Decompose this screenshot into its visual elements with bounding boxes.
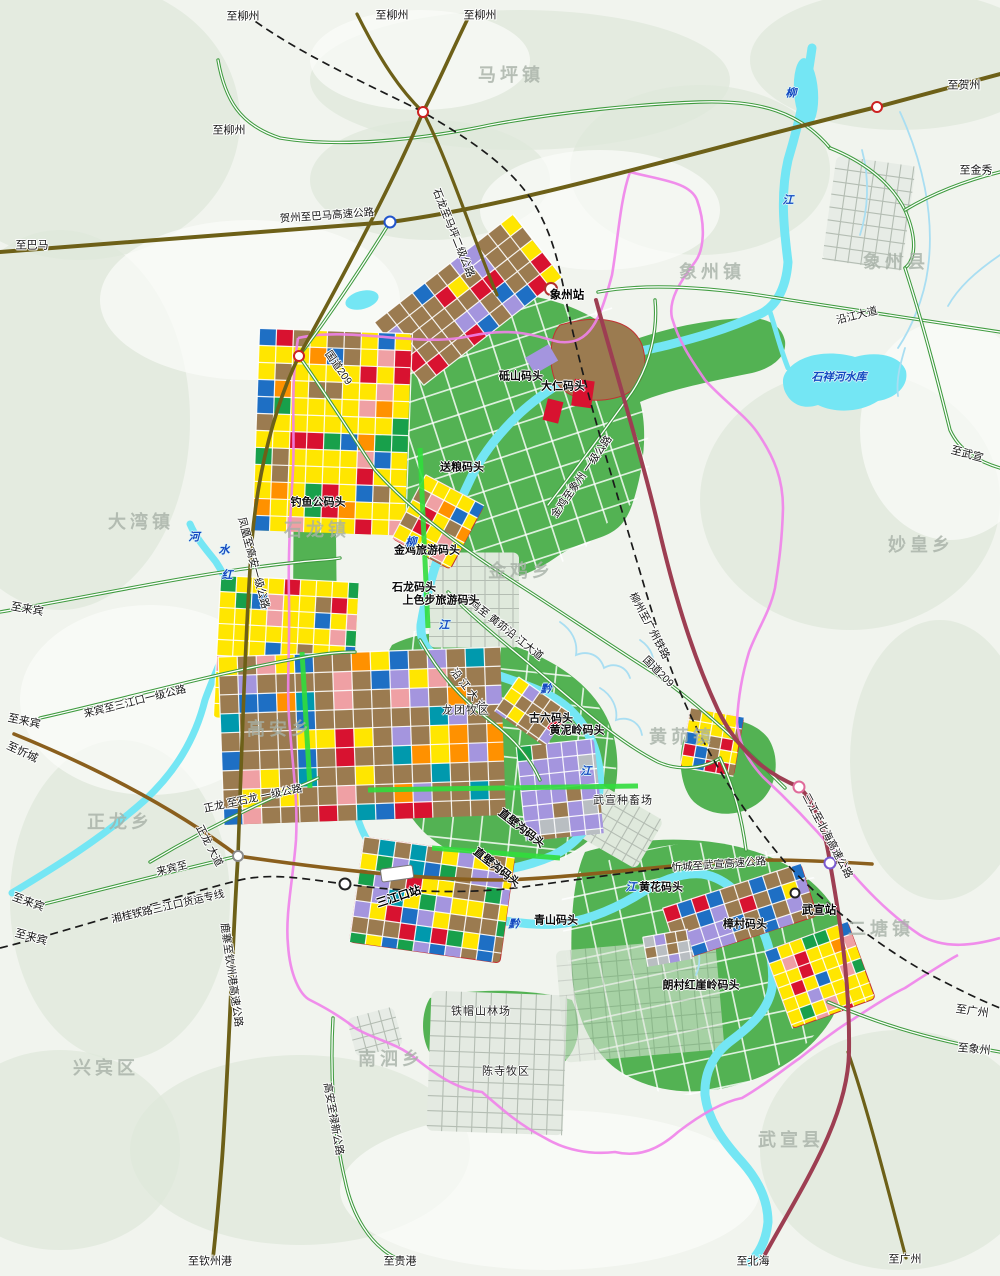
road-label: 来宾至 xyxy=(155,860,188,878)
destination-label: 至贺州 xyxy=(948,81,981,92)
river-label: 江 xyxy=(783,196,794,207)
road-label: 国道209 xyxy=(323,349,354,387)
destination-label: 至金秀 xyxy=(960,166,993,177)
road-label: 来宾至三江口一级公路 xyxy=(83,684,187,720)
region-label: 象州县 xyxy=(863,253,929,271)
wharf-label: 金鸡旅游码头 xyxy=(394,546,460,557)
river-label: 江 xyxy=(581,767,592,778)
destination-label: 至来宾 xyxy=(7,713,42,731)
destination-label: 至北海 xyxy=(737,1257,770,1268)
destination-label: 至柳州 xyxy=(376,11,409,22)
region-label: 二塘镇 xyxy=(848,920,914,938)
station-label: 武宣站 xyxy=(802,905,837,917)
road-label: 贺州至巴马高速公路 xyxy=(279,207,374,224)
wharf-label: 送粮码头 xyxy=(440,463,484,474)
destination-label: 至来宾 xyxy=(11,892,46,914)
wharf-label: 樟村码头 xyxy=(723,920,767,931)
destination-label: 至武宣 xyxy=(950,445,985,464)
road-label: 正龙 大道 xyxy=(194,824,224,869)
region-label: 黄茆镇 xyxy=(649,728,715,746)
region-label: 高安乡 xyxy=(247,720,313,738)
region-label: 正龙乡 xyxy=(87,813,153,831)
destination-label: 至钦州港 xyxy=(188,1257,232,1268)
facility-label: 龙团牧区 xyxy=(442,706,490,717)
river-label: 江 xyxy=(626,883,637,894)
destination-label: 至来宾 xyxy=(14,928,49,947)
region-label: 象州镇 xyxy=(679,263,745,281)
river-label: 柳 xyxy=(786,89,797,100)
region-label: 武宣县 xyxy=(758,1131,824,1149)
facility-label: 铁帽山林场 xyxy=(451,1007,511,1018)
region-label: 妙皇乡 xyxy=(888,536,954,554)
station-label: 象州站 xyxy=(550,290,585,302)
wharf-label: 黄花码头 xyxy=(639,883,683,894)
destination-label: 至广州 xyxy=(955,1004,989,1019)
destination-label: 至广州 xyxy=(889,1255,922,1266)
wharf-label: 砥山码头 xyxy=(499,372,543,383)
road-label: 忻城至武宣高速公路 xyxy=(671,856,766,873)
wharf-label: 大仁码头 xyxy=(541,382,585,393)
wharf-label: 青山码头 xyxy=(534,916,578,927)
destination-label: 至柳州 xyxy=(464,11,497,22)
station-label: 三江口站 xyxy=(375,885,422,910)
road-label: 石龙至马坪二级公路 xyxy=(430,187,475,279)
destination-label: 至来宾 xyxy=(10,602,44,619)
region-label: 马坪镇 xyxy=(478,66,544,84)
wharf-label: 古六码头 xyxy=(529,714,573,725)
wharf-label: 朗村红崖岭码头 xyxy=(663,981,740,992)
river-label: 水 xyxy=(219,546,230,557)
road-label: 三江至北海高速公路 xyxy=(800,792,854,880)
road-label: 凤凰至高安一级公路 xyxy=(236,516,271,610)
region-label: 金鸡乡 xyxy=(488,562,554,580)
wharf-label: 钓鱼公码头 xyxy=(291,498,346,509)
river-label: 柳 xyxy=(406,538,417,549)
destination-label: 至柳州 xyxy=(213,126,246,137)
wharf-label: 直壁沟码头 xyxy=(471,847,521,890)
river-label: 红 xyxy=(222,571,233,582)
map-labels-layer: 至柳州至柳州至柳州至柳州至贺州至金秀至巴马至武宣至来宾至来宾至忻城至来宾至来宾至… xyxy=(0,0,1000,1276)
region-label: 兴宾区 xyxy=(73,1059,139,1077)
wharf-label: 黄泥岭码头 xyxy=(550,726,605,737)
wharf-label: 上色步旅游码头 xyxy=(403,596,480,607)
region-label: 大湾镇 xyxy=(108,513,174,531)
road-label: 正龙 至石龙 一级公路 xyxy=(203,783,303,814)
road-label: 鹿寨至钦州港高速公路 xyxy=(218,922,243,1027)
wharf-label: 直壁沟码头 xyxy=(496,808,546,851)
facility-label: 陈寺牧区 xyxy=(482,1067,530,1078)
destination-label: 至象州 xyxy=(957,1043,991,1057)
destination-label: 至贵港 xyxy=(384,1257,417,1268)
road-label: 高安至禄新公路 xyxy=(321,1082,344,1156)
facility-label: 武宣种畜场 xyxy=(593,796,653,807)
river-label: 江 xyxy=(439,621,450,632)
road-label: 国道209 xyxy=(641,655,676,690)
planning-map: 至柳州至柳州至柳州至柳州至贺州至金秀至巴马至武宣至来宾至来宾至忻城至来宾至来宾至… xyxy=(0,0,1000,1276)
region-label: 南泗乡 xyxy=(358,1050,424,1068)
road-label: 湘桂铁路三江口货运专线 xyxy=(111,889,226,925)
road-label: 沿江大道 xyxy=(835,306,878,326)
destination-label: 至柳州 xyxy=(227,12,260,23)
destination-label: 至巴马 xyxy=(16,241,49,252)
road-label: 柳州至广州铁路 xyxy=(627,591,671,661)
region-label: 石龙镇 xyxy=(284,521,350,539)
road-label: 金鸡至象州 一级公路 xyxy=(550,434,614,520)
river-label: 河 xyxy=(189,533,200,544)
river-label: 石祥河水库 xyxy=(812,373,867,384)
river-label: 黔 xyxy=(509,920,520,931)
wharf-label: 石龙码头 xyxy=(392,583,436,594)
river-label: 黔 xyxy=(541,685,552,696)
destination-label: 至忻城 xyxy=(5,741,40,765)
